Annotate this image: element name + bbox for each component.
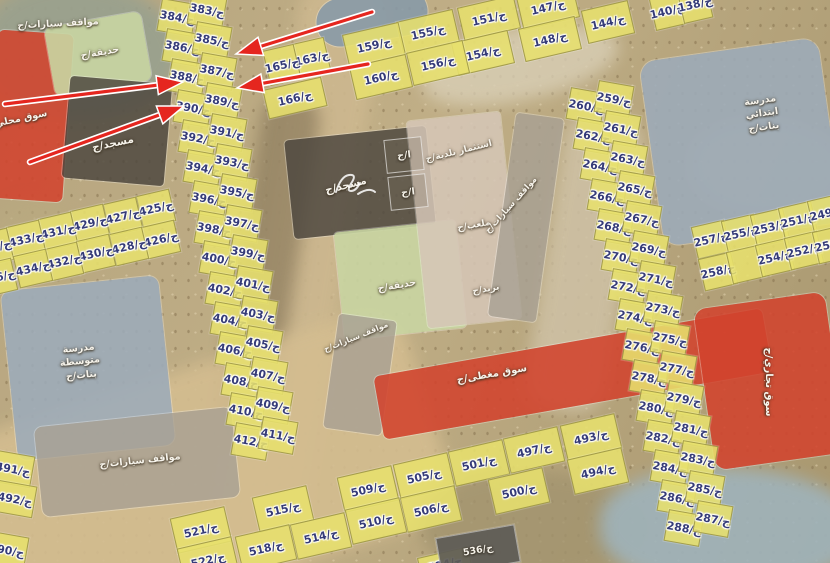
parcel-label: 518/ج xyxy=(248,538,285,559)
parcel-label: 399/ج xyxy=(230,244,267,263)
label-line: سوق تجاري/ج xyxy=(761,347,775,416)
parcel-label: 501/ج xyxy=(461,453,498,474)
parcel-label: 514/ج xyxy=(303,526,340,547)
parcel-label: 385/ج xyxy=(194,31,231,50)
parcel-label: 259/ج xyxy=(596,90,633,109)
parcel-label: 492/ج xyxy=(0,490,33,509)
parcel-label: 285/ج xyxy=(687,480,724,499)
parcel-label: 155/ج xyxy=(410,22,447,43)
parcel-label: 428/ج xyxy=(111,236,148,257)
parcel-label: 427/ج xyxy=(105,206,142,227)
parcel-annex-0[interactable]: ا/ج xyxy=(383,136,424,174)
parcel-label: 395/ج xyxy=(219,183,256,202)
parcel-label: 391/ج xyxy=(209,123,246,142)
parcel-411[interactable]: 411/ج xyxy=(257,416,298,455)
parcel-annex-1[interactable]: ا/ج xyxy=(387,173,428,211)
parcel-497[interactable]: 497/ج xyxy=(503,426,566,474)
parcel-label: 510/ج xyxy=(358,511,395,532)
parcel-label: 430/ج xyxy=(78,243,115,264)
parcel-287[interactable]: 287/ج xyxy=(692,500,733,538)
parcel-label: 277/ج xyxy=(659,360,696,379)
parcel-label: 147/ج xyxy=(530,0,567,17)
parcel-label: 148/ج xyxy=(532,29,569,50)
parcel-label: 387/ج xyxy=(199,62,236,81)
parcel-label: 287/ج xyxy=(695,510,732,529)
parcel-label: 403/ج xyxy=(240,305,277,324)
parcel-label: 389/ج xyxy=(204,92,241,111)
parcel-label: 429/ج xyxy=(72,213,109,234)
parcel-label: 154/ج xyxy=(465,43,502,64)
parcel-label: 505/ج xyxy=(406,466,443,487)
parcel-label: 411/ج xyxy=(260,426,297,445)
parcel-label: 426/ج xyxy=(143,229,180,250)
parcel-label: 494/ج xyxy=(580,461,617,482)
parcel-label: 515/ج xyxy=(265,499,302,520)
parcel-434[interactable]: 434/ج xyxy=(13,248,54,288)
parcel-label: 151/ج xyxy=(471,8,508,29)
parcel-label: ا/ج xyxy=(397,149,412,161)
parcel-label: 261/ج xyxy=(603,120,640,139)
parcel-label: ا/ج xyxy=(401,186,416,198)
parcel-144[interactable]: 144/ج xyxy=(581,0,635,44)
parcel-label: 393/ج xyxy=(214,153,251,172)
parcel-label: 536/ج xyxy=(462,542,494,558)
parcel-label: 500/ج xyxy=(501,481,538,502)
parcel-492[interactable]: 492/ج xyxy=(0,480,37,518)
zone-commercial-market-east-label: سوق تجاري/ج xyxy=(761,347,775,416)
parcel-label: 138/ج xyxy=(677,0,714,14)
parcel-label: 144/ج xyxy=(590,12,627,33)
parcel-label: 166/ج xyxy=(277,88,314,109)
parcel-label: 407/ج xyxy=(250,366,287,385)
parcel-label: 160/ج xyxy=(363,67,400,88)
parcel-label: 497/ج xyxy=(516,440,553,461)
parcel-label: 431/ج xyxy=(40,221,77,242)
parcel-label: 383/ج xyxy=(189,1,226,20)
parcel-label: 506/ج xyxy=(413,499,450,520)
parcel-label: 279/ج xyxy=(666,390,703,409)
parcel-label: 401/ج xyxy=(235,275,272,294)
cadastral-satellite-map[interactable]: سوق محلي/جحديقة/جمسجد/جمدرسةمتوسطةبنات/ج… xyxy=(0,0,830,563)
parcel-label: 509/ج xyxy=(350,479,387,500)
parcel-label: 425/ج xyxy=(138,198,175,219)
parcel-label: 249/ج xyxy=(809,203,830,224)
parcel-label: 275/ج xyxy=(652,330,689,349)
parcel-label: 409/ج xyxy=(255,396,292,415)
parcel-label: 434/ج xyxy=(15,258,52,279)
parcel-label: 271/ج xyxy=(638,270,675,289)
parcel-label: 491/ج xyxy=(0,460,31,479)
parcel-label: 156/ج xyxy=(420,53,457,74)
parcel-label: 267/ج xyxy=(624,210,661,229)
parcel-label: 436/ج xyxy=(0,267,16,288)
zone-mosque-west[interactable] xyxy=(62,76,173,187)
parcel-label: 493/ج xyxy=(573,427,610,448)
parcel-label: 433/ج xyxy=(8,229,45,250)
parcel-label: 273/ج xyxy=(645,300,682,319)
parcel-label: 397/ج xyxy=(224,214,261,233)
parcel-label: 159/ج xyxy=(356,35,393,56)
parcel-label: 250/ج xyxy=(814,234,830,255)
parcel-label: 281/ج xyxy=(673,420,710,439)
parcel-label: 405/ج xyxy=(245,335,282,354)
parcel-label: 165/ج xyxy=(264,55,301,76)
parcel-label: 283/ج xyxy=(680,450,717,469)
parcel-label: 263/ج xyxy=(610,150,647,169)
parcel-label: 522/ج xyxy=(190,550,227,563)
zone-school-northeast-label: مدرسةابتدائيبنات/ج xyxy=(743,92,781,136)
parcel-label: 521/ج xyxy=(183,520,220,541)
parcel-label: 265/ج xyxy=(617,180,654,199)
parcel-label: 490/ج xyxy=(0,541,25,560)
zone-school-west-label: مدرسةمتوسطةبنات/ج xyxy=(58,340,102,384)
parcel-label: 269/ج xyxy=(631,240,668,259)
